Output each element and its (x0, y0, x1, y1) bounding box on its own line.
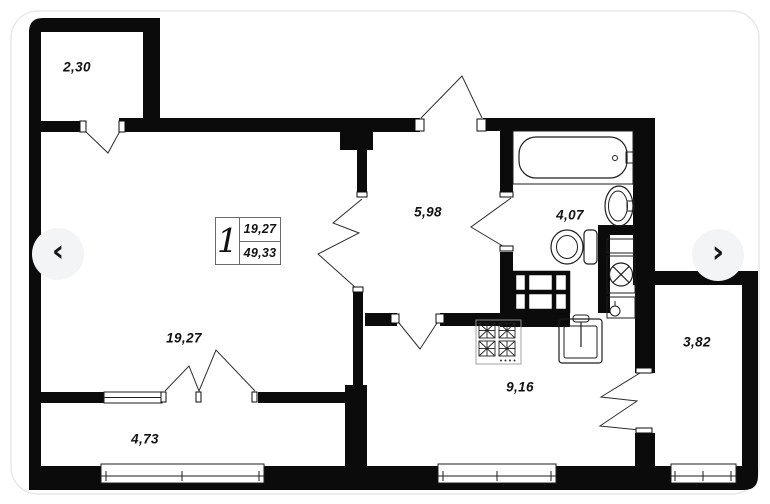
chevron-right-icon: › (712, 238, 724, 268)
window-kitchen (438, 464, 556, 483)
room-area-label-bathroom: 4,07 (556, 208, 584, 223)
floor-plan-svg (0, 0, 770, 504)
room-area-label-living-room: 19,27 (166, 331, 202, 346)
unit-summary-box: 1 19,27 49,33 (215, 217, 281, 265)
room-area-label-kitchen: 9,16 (506, 380, 534, 395)
room-area-label-balcony-bottom: 4,73 (131, 432, 159, 447)
prev-plan-button[interactable]: ‹ (32, 228, 84, 280)
room-area-label-storage-right: 3,82 (683, 335, 711, 350)
window-balcony-partition (104, 392, 162, 403)
window-storage-right (671, 464, 736, 483)
rooms-count: 1 (216, 218, 240, 264)
next-plan-button[interactable]: › (692, 229, 744, 281)
living-area-value: 19,27 (240, 218, 280, 242)
room-area-label-balcony-top: 2,30 (63, 60, 91, 75)
window-balcony-bottom (101, 464, 264, 483)
room-area-label-hallway: 5,98 (414, 205, 442, 220)
floorplan-viewer: 2,30 19,27 5,98 4,07 9,16 3,82 4,73 1 19… (0, 0, 770, 504)
total-area-value: 49,33 (240, 242, 280, 265)
chevron-left-icon: ‹ (52, 237, 64, 267)
